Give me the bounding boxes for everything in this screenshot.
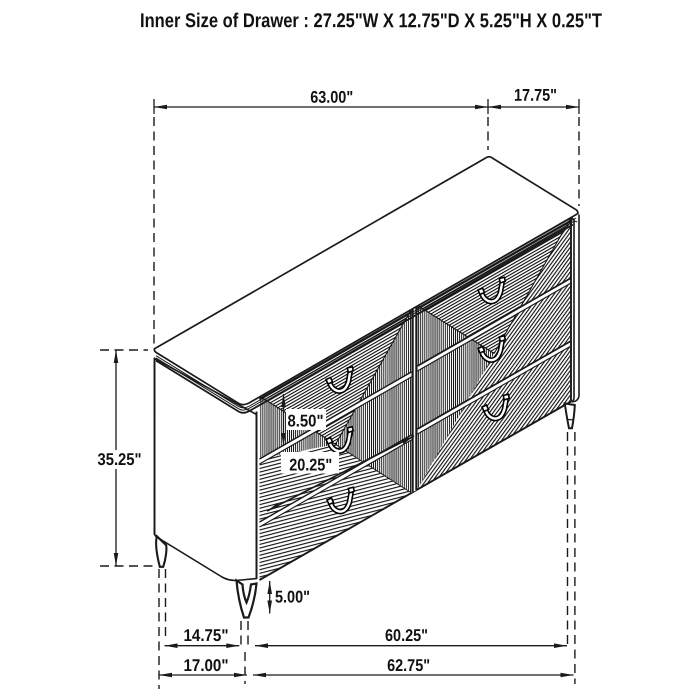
svg-text:62.75": 62.75" <box>387 656 430 675</box>
svg-text:17.75": 17.75" <box>514 86 557 105</box>
svg-text:8.50": 8.50" <box>287 411 323 430</box>
svg-text:5.00": 5.00" <box>275 587 310 606</box>
svg-text:63.00": 63.00" <box>310 88 353 107</box>
svg-text:17.00": 17.00" <box>183 656 228 675</box>
svg-text:35.25": 35.25" <box>97 450 141 469</box>
svg-text:14.75": 14.75" <box>183 626 228 645</box>
svg-text:20.25": 20.25" <box>289 455 332 474</box>
svg-text:60.25": 60.25" <box>385 626 428 645</box>
svg-text:Inner Size of Drawer : 27.25"W: Inner Size of Drawer : 27.25"W X 12.75"D… <box>140 10 602 32</box>
